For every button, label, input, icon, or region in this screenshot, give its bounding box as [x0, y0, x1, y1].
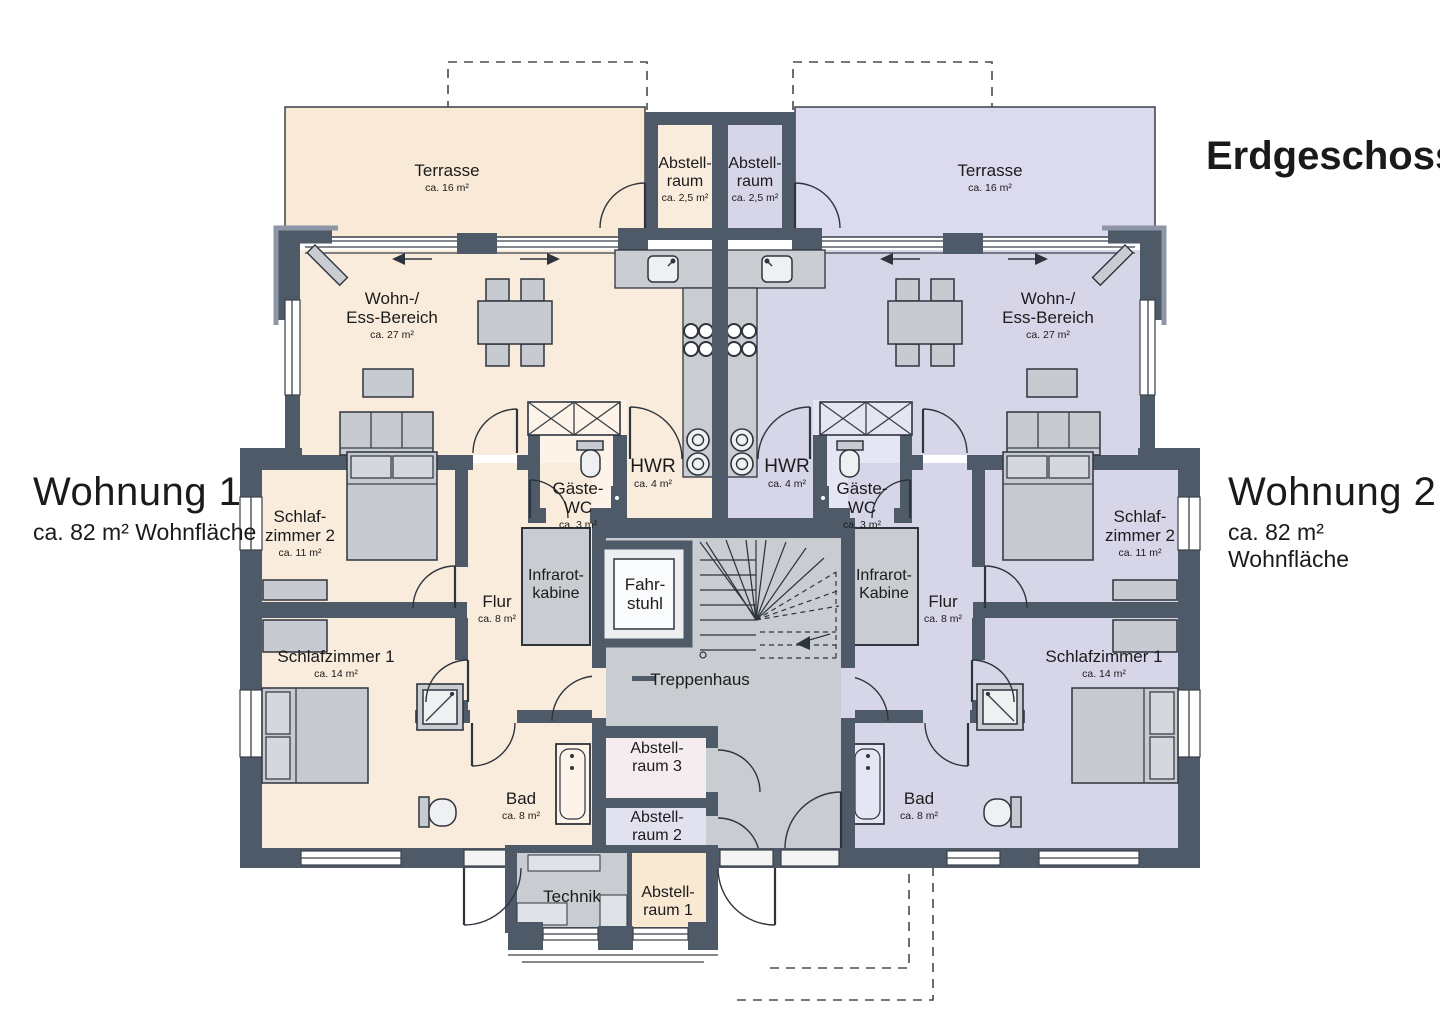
label-infrarotkabine-1: Infrarot-kabine — [528, 567, 584, 602]
upper-floor-overhang-outline — [737, 868, 933, 1000]
label-abstellraum-2: Abstell-raum 2 — [630, 809, 683, 844]
label-abstellraum-3: Abstell-raum 3 — [630, 740, 683, 775]
label-bad-2: Badca. 8 m² — [900, 789, 938, 822]
label-infrarotkabine-2: Infrarot-Kabine — [856, 567, 912, 602]
label-technik: Technik — [543, 887, 601, 906]
label-hwr-1: HWRca. 4 m² — [630, 456, 675, 490]
label-abstellraum-1: Abstell-raum 1 — [641, 884, 694, 919]
label-hwr-2: HWRca. 4 m² — [764, 456, 809, 490]
south-wall — [240, 848, 1200, 868]
wohnung-2-area: ca. 82 m² Wohnfläche — [1228, 519, 1440, 573]
roof-overhang-outline — [793, 62, 992, 110]
label-flur-2: Flurca. 8 m² — [924, 592, 962, 625]
wohnung-2-header: Wohnung 2 ca. 82 m² Wohnfläche — [1228, 470, 1440, 573]
entry-door-wohnung2 — [718, 868, 775, 925]
floor-plan-page: Terrasseca. 16 m²Abstell-raumca. 2,5 m²A… — [0, 0, 1440, 1018]
wohnung-2-name: Wohnung 2 — [1228, 470, 1440, 515]
page-title: Erdgeschoss — [1206, 134, 1416, 179]
label-flur-1: Flurca. 8 m² — [478, 592, 516, 625]
wohnung-1-name: Wohnung 1 — [33, 470, 256, 515]
wohnung-1-area: ca. 82 m² Wohnfläche — [33, 519, 256, 546]
roof-overhang-outline — [448, 62, 647, 110]
label-treppenhaus: Treppenhaus — [650, 670, 750, 689]
label-bad-1: Badca. 8 m² — [502, 789, 540, 822]
wohnung-1-header: Wohnung 1 ca. 82 m² Wohnfläche — [33, 470, 256, 546]
label-fahrstuhl: Fahr-stuhl — [625, 575, 666, 613]
party-wall — [712, 237, 728, 522]
